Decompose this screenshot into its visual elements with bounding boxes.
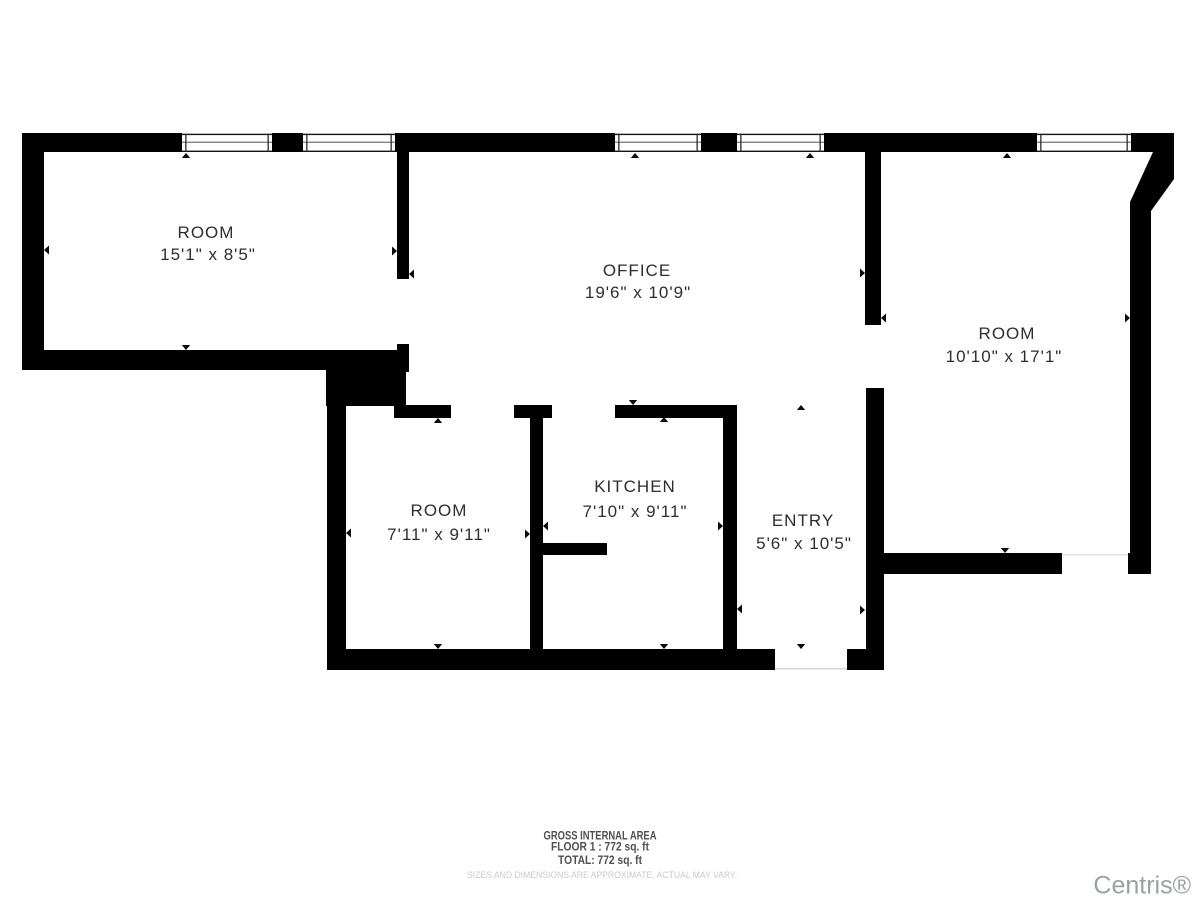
svg-text:ENTRY: ENTRY — [772, 511, 834, 530]
svg-text:5'6" x 10'5": 5'6" x 10'5" — [756, 534, 852, 553]
svg-text:ROOM: ROOM — [411, 501, 468, 520]
svg-text:7'10" x 9'11": 7'10" x 9'11" — [583, 502, 688, 521]
svg-text:FLOOR 1 : 772 sq. ft: FLOOR 1 : 772 sq. ft — [551, 840, 649, 854]
svg-text:10'10" x 17'1": 10'10" x 17'1" — [946, 347, 1063, 366]
svg-text:19'6" x 10'9": 19'6" x 10'9" — [585, 283, 691, 302]
svg-text:ROOM: ROOM — [178, 223, 235, 242]
svg-text:KITCHEN: KITCHEN — [594, 477, 676, 496]
svg-text:SIZES AND DIMENSIONS ARE APPRO: SIZES AND DIMENSIONS ARE APPROXIMATE, AC… — [467, 870, 737, 881]
svg-text:Centris®: Centris® — [1093, 872, 1191, 900]
svg-text:7'11" x 9'11": 7'11" x 9'11" — [387, 525, 491, 544]
svg-text:OFFICE: OFFICE — [603, 261, 671, 280]
svg-text:TOTAL: 772 sq. ft: TOTAL: 772 sq. ft — [558, 853, 642, 867]
svg-text:ROOM: ROOM — [979, 324, 1036, 343]
svg-text:15'1" x 8'5": 15'1" x 8'5" — [160, 245, 256, 264]
